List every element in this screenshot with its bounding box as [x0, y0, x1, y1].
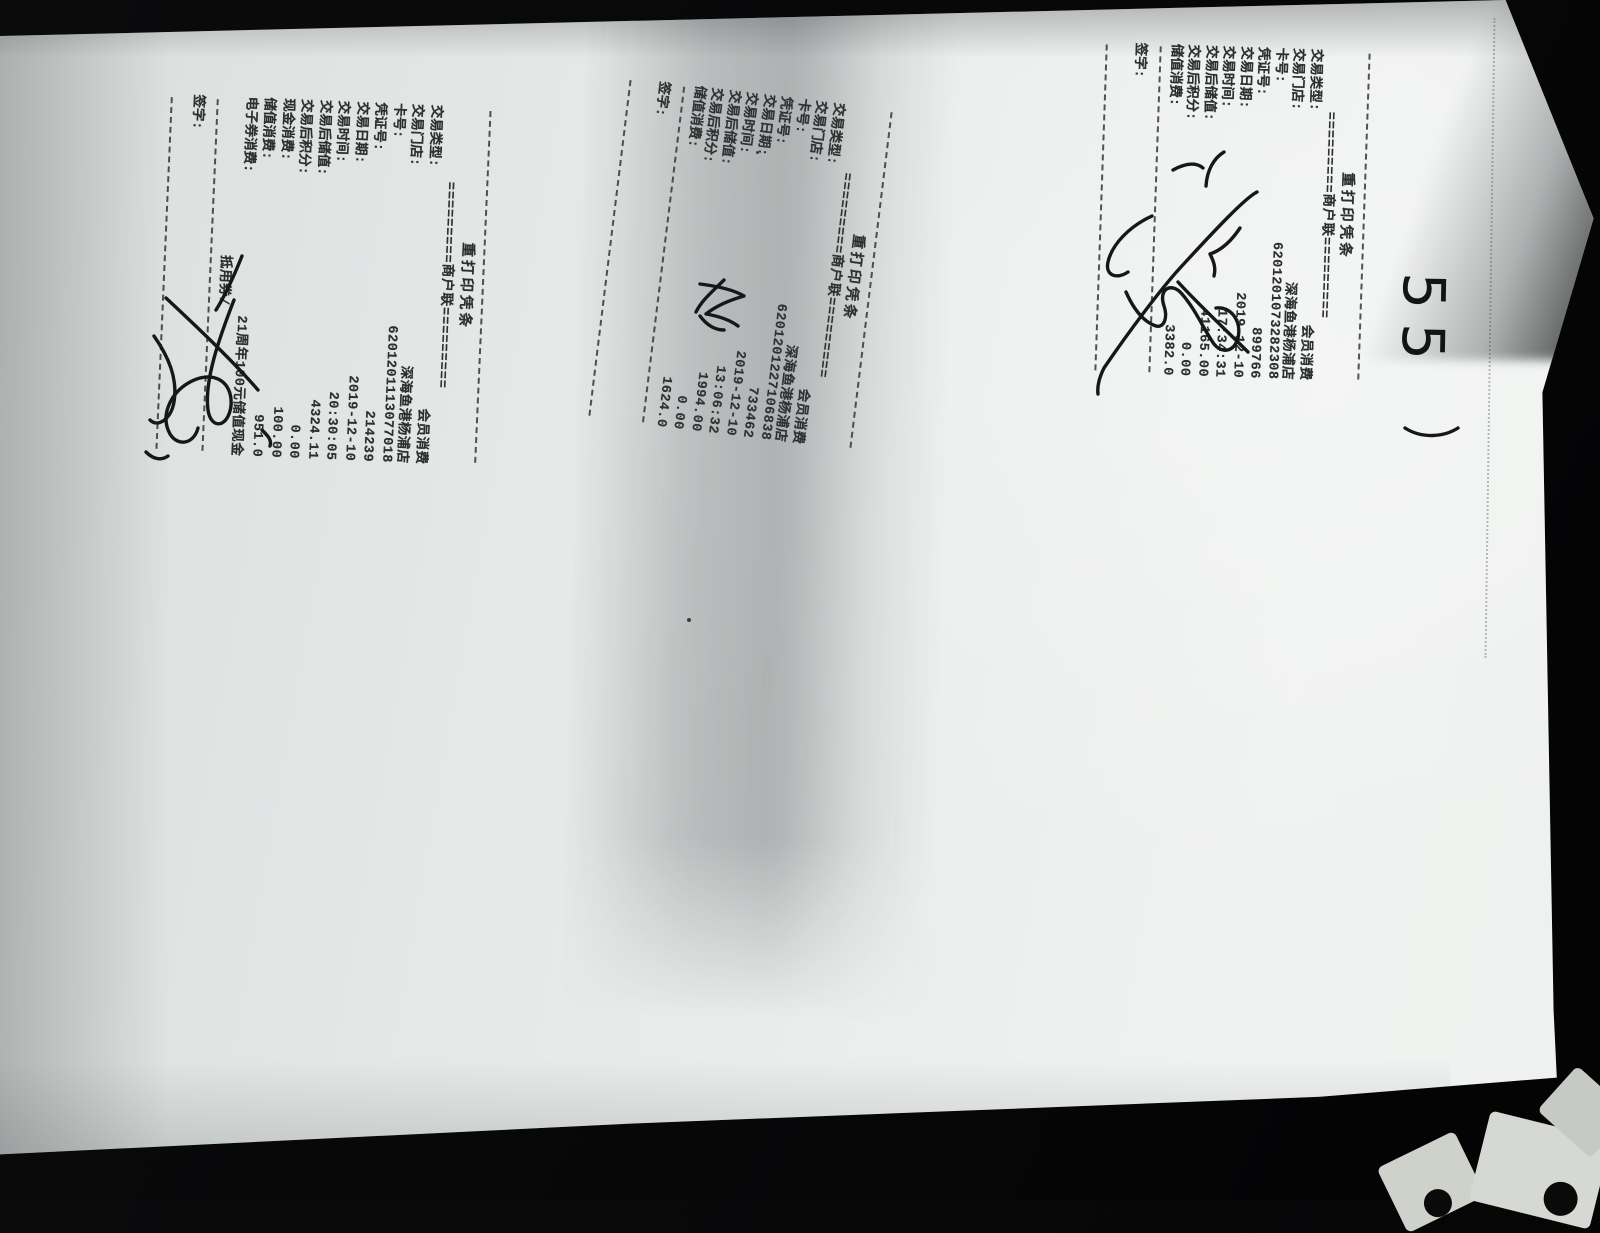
field-value: 0.00: [670, 394, 689, 430]
paper-scrap: [1377, 1131, 1486, 1233]
left-edge-shadow: [0, 0, 170, 1200]
field-value: 214239: [359, 410, 376, 462]
field-value: 抵用券/: [215, 255, 238, 306]
field-value: 3382.0: [1159, 324, 1176, 376]
field-value: 951.0: [249, 414, 266, 458]
field-value: 17:34:31: [1212, 309, 1229, 378]
paper-speck: [687, 618, 691, 622]
field-value: 41165.00: [1194, 308, 1211, 377]
field-value: 4324.11: [304, 399, 322, 460]
field-value: 0.00: [286, 424, 302, 459]
punch-hole: [1419, 1184, 1456, 1221]
receipt-1: 重打印凭条=========商户联=========交易类型:会员消费交易门店:…: [1087, 41, 1378, 383]
paper-speck: [756, 151, 759, 154]
field-value: 0.00: [1177, 342, 1193, 377]
receipt-3: 重打印凭条=========商户联=========交易类型:会员消费交易门店:…: [149, 93, 498, 467]
field-value: 899766: [1247, 327, 1264, 379]
photo-scene: 重打印凭条=========商户联=========交易类型:会员消费交易门店:…: [0, 0, 1600, 1200]
bottom-edge-shadow: [0, 1060, 1450, 1180]
field-value: 100.00: [267, 406, 284, 458]
punch-hole: [1540, 1178, 1581, 1219]
field-value: 2019-12-10: [1229, 292, 1247, 378]
top-edge-shadow: [0, 0, 1600, 58]
field-value: 20:30:05: [322, 391, 340, 460]
paper-crease-line: [1485, 18, 1496, 658]
top-right-corner-shadow: [1360, 0, 1600, 360]
field-value: 6201201073282308: [1264, 242, 1284, 380]
paper-sheet: 重打印凭条=========商户联=========交易类型:会员消费交易门店:…: [0, 0, 1600, 1200]
field-value: 2019-12-10: [341, 375, 360, 462]
receipt-2: 重打印凭条=========商户联=========交易类型:会员消费交易门店:…: [581, 76, 901, 452]
